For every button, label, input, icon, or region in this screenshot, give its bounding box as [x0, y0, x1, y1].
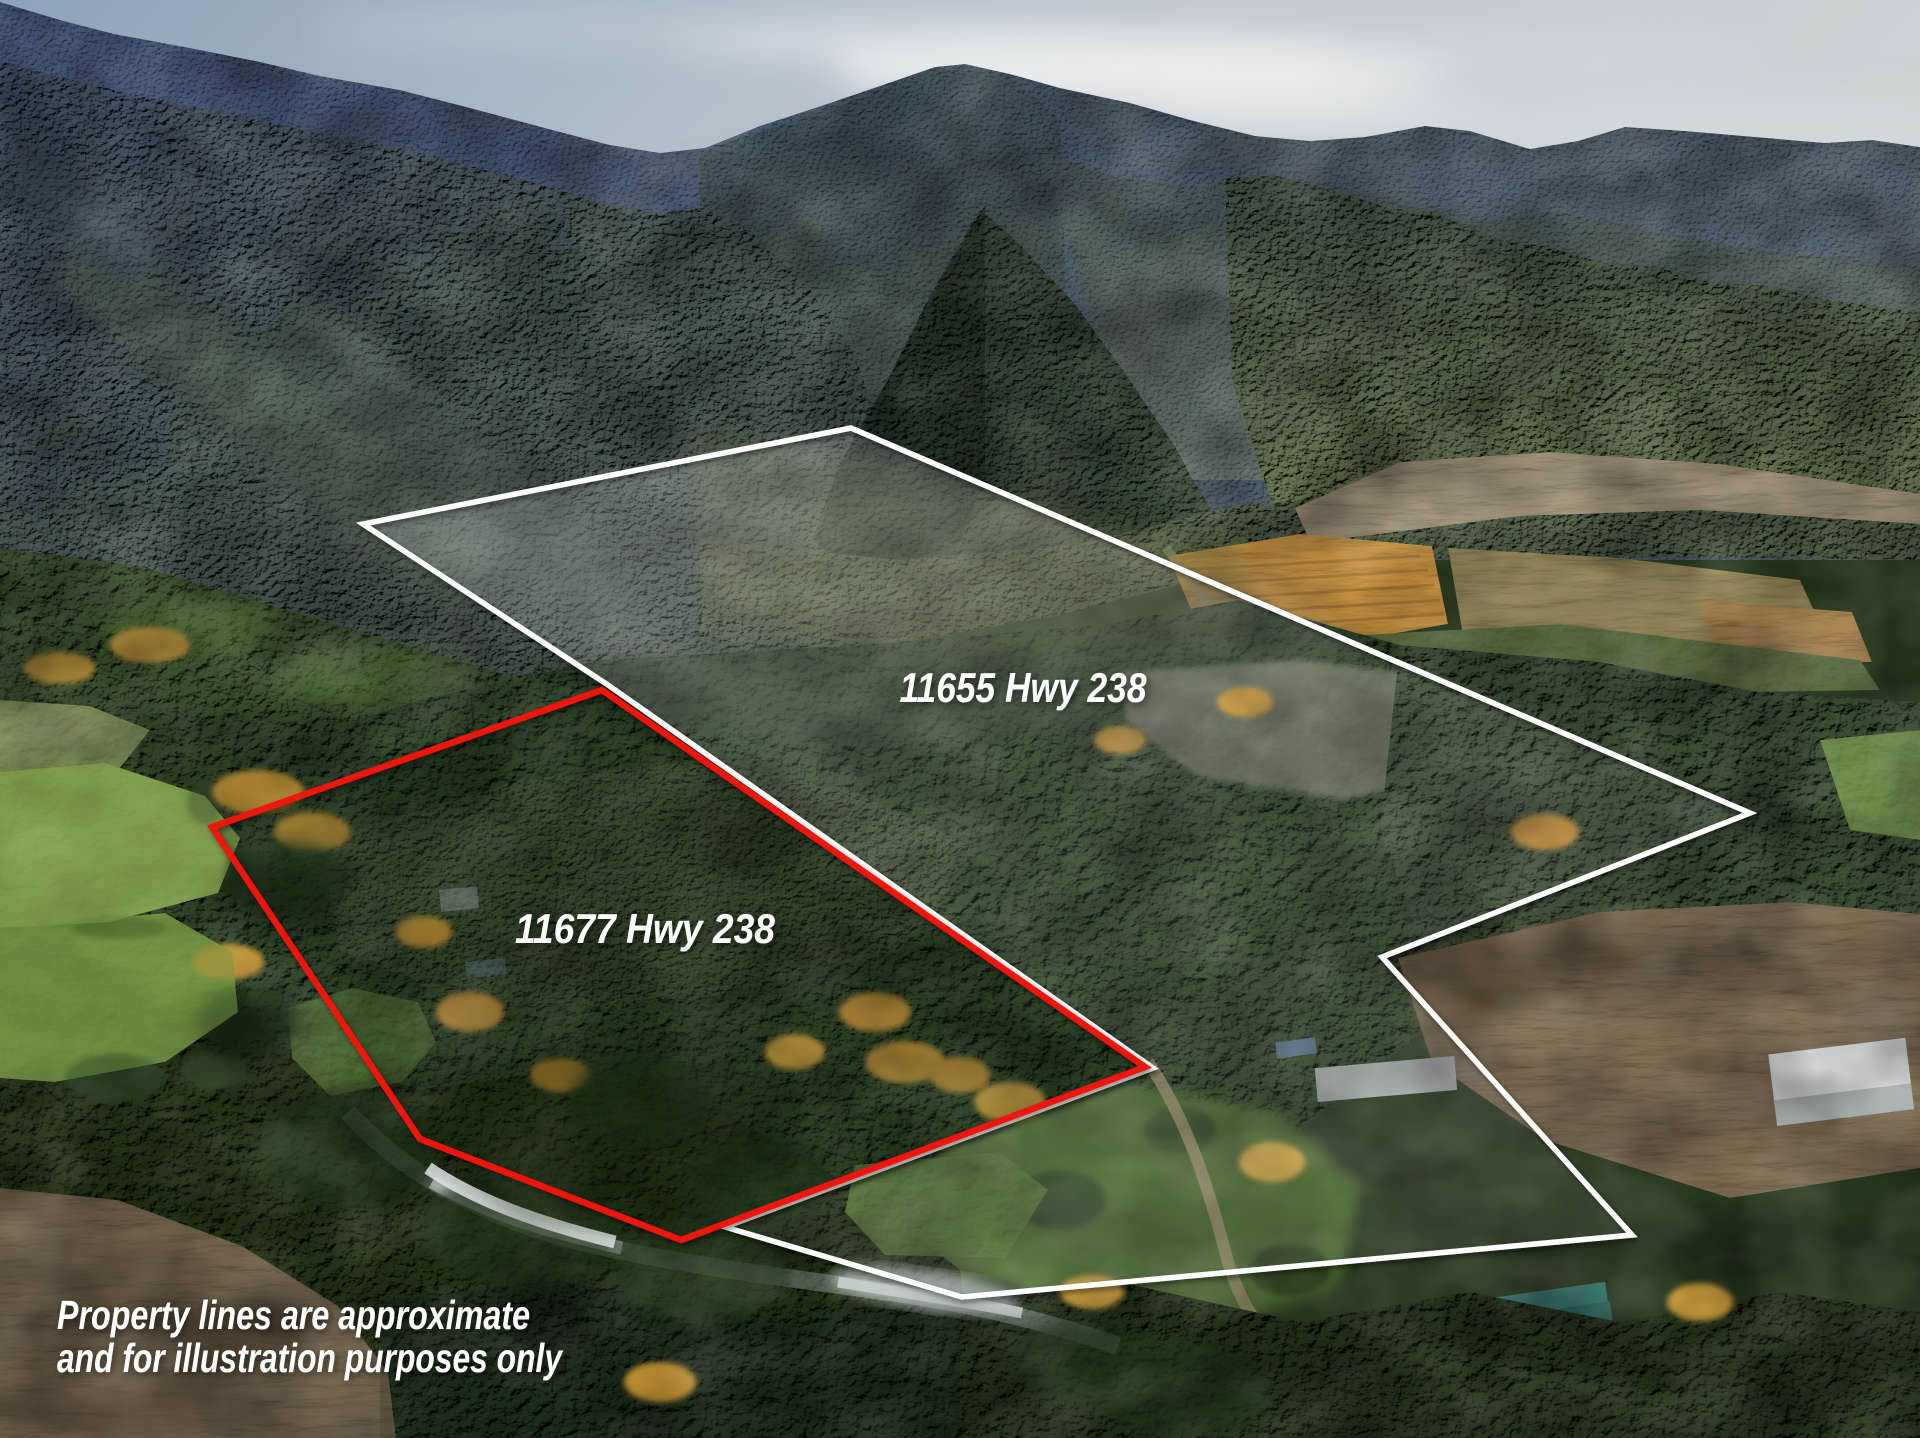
svg-text:11655 Hwy 238: 11655 Hwy 238 — [900, 664, 1148, 711]
svg-text:Property lines are approximate: Property lines are approximate — [57, 1292, 530, 1338]
svg-text:and for illustration purposes: and for illustration purposes only — [57, 1335, 564, 1381]
svg-text:11677 Hwy 238: 11677 Hwy 238 — [515, 905, 776, 952]
